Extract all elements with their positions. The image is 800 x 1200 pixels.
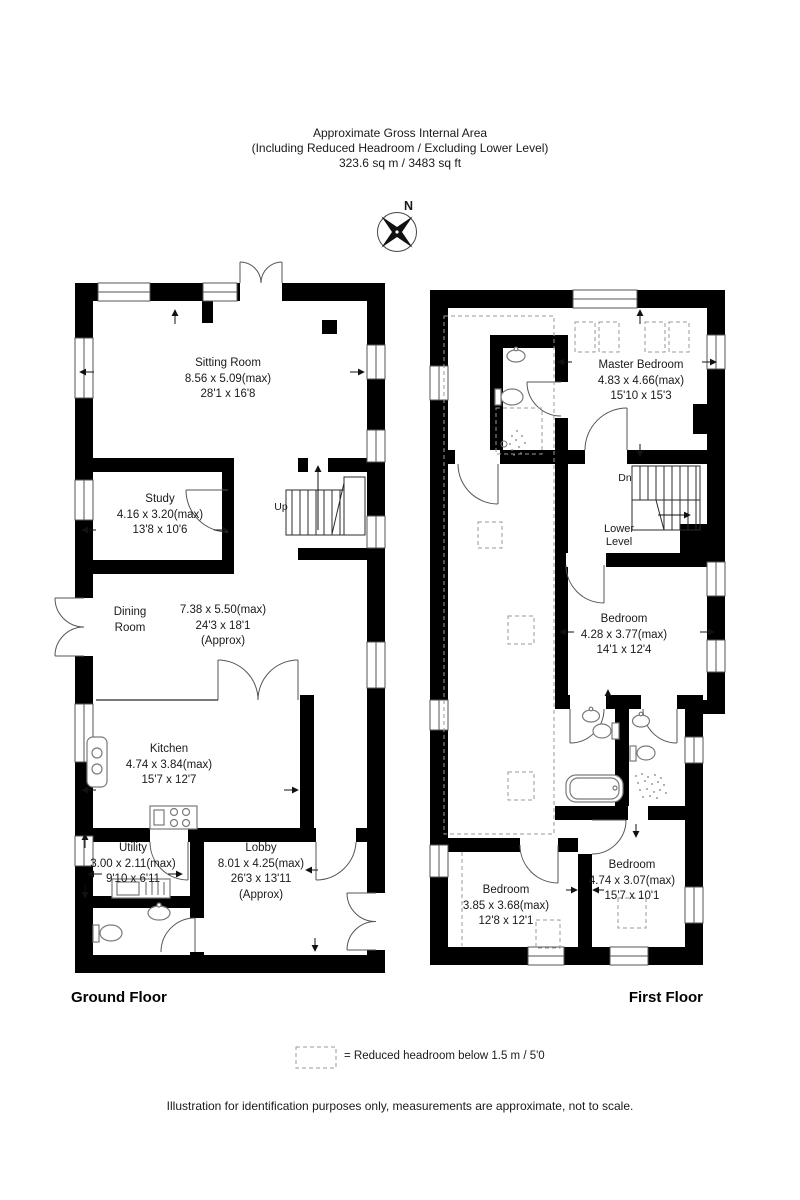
header-line3: 323.6 sq m / 3483 sq ft — [0, 156, 800, 171]
room-label-bedroom-middle: Bedroom 4.28 x 3.77(max) 14'1 x 12'4 — [581, 612, 667, 659]
room-name: Bedroom — [589, 858, 675, 874]
room-label-study: Study 4.16 x 3.20(max) 13'8 x 10'6 — [117, 492, 203, 539]
room-imperial: 9'10 x 6'11 — [90, 872, 175, 888]
room-imperial: 26'3 x 13'11 — [218, 872, 304, 888]
basin-icon — [583, 710, 600, 722]
room-name: Master Bedroom — [598, 358, 684, 374]
room-imperial: 15'10 x 15'3 — [598, 389, 684, 405]
basin-icon — [148, 906, 170, 920]
toilet-icon — [495, 389, 501, 405]
compass-north-label: N — [404, 199, 413, 213]
room-label-master-bedroom: Master Bedroom 4.83 x 4.66(max) 15'10 x … — [598, 358, 684, 405]
first-fixtures — [495, 347, 655, 802]
room-metric: 4.28 x 3.77(max) — [581, 628, 667, 644]
room-label-dining-room-dims: 7.38 x 5.50(max) 24'3 x 18'1 (Approx) — [180, 603, 266, 650]
room-name: Bedroom — [463, 883, 549, 899]
room-imperial: 15'7 x 12'7 — [126, 773, 212, 789]
room-imperial: 12'8 x 12'1 — [463, 914, 549, 930]
toilet-icon — [93, 925, 99, 942]
floor-plan-drawing — [0, 0, 800, 1200]
room-name: Utility — [90, 841, 175, 857]
room-imperial: 15'7 x 10'1 — [589, 889, 675, 905]
room-imperial: 13'8 x 10'6 — [117, 523, 203, 539]
stairs-down-label: Dn — [618, 472, 631, 484]
room-approx: (Approx) — [180, 634, 266, 650]
room-metric: 7.38 x 5.50(max) — [180, 603, 266, 619]
room-imperial: 14'1 x 12'4 — [581, 643, 667, 659]
first-floor-title: First Floor — [629, 989, 703, 1006]
kitchen-sink-icon — [87, 737, 107, 787]
room-metric: 4.74 x 3.84(max) — [126, 758, 212, 774]
room-metric: 3.00 x 2.11(max) — [90, 857, 175, 873]
room-metric: 3.85 x 3.68(max) — [463, 899, 549, 915]
room-metric: 4.16 x 3.20(max) — [117, 508, 203, 524]
room-name: Bedroom — [581, 612, 667, 628]
legend-label: = Reduced headroom below 1.5 m / 5'0 — [344, 1050, 545, 1062]
compass-icon — [378, 213, 417, 252]
room-label-bedroom-bottom-left: Bedroom 3.85 x 3.68(max) 12'8 x 12'1 — [463, 883, 549, 930]
toilet-icon — [630, 746, 636, 761]
room-name: Sitting Room — [185, 356, 271, 372]
ground-stairs — [286, 466, 365, 535]
room-name: Kitchen — [126, 742, 212, 758]
room-name: Room — [114, 621, 147, 637]
basin-icon — [633, 715, 650, 727]
room-label-sitting-room: Sitting Room 8.56 x 5.09(max) 28'1 x 16'… — [185, 356, 271, 403]
lower-level-label: Lower Level — [604, 523, 634, 549]
room-imperial: 28'1 x 16'8 — [185, 387, 271, 403]
floorplan-page: Approximate Gross Internal Area (Includi… — [0, 0, 800, 1200]
header-line1: Approximate Gross Internal Area — [0, 126, 800, 141]
room-name: Dining — [114, 605, 147, 621]
footer-disclaimer: Illustration for identification purposes… — [0, 1099, 800, 1113]
room-label-utility: Utility 3.00 x 2.11(max) 9'10 x 6'11 — [90, 841, 175, 888]
room-metric: 8.56 x 5.09(max) — [185, 372, 271, 388]
basin-icon — [507, 350, 525, 362]
room-label-bedroom-bottom-right: Bedroom 4.74 x 3.07(max) 15'7 x 10'1 — [589, 858, 675, 905]
room-label-kitchen: Kitchen 4.74 x 3.84(max) 15'7 x 12'7 — [126, 742, 212, 789]
room-imperial: 24'3 x 18'1 — [180, 619, 266, 635]
room-label-lobby: Lobby 8.01 x 4.25(max) 26'3 x 13'11 (App… — [218, 841, 304, 903]
toilet-icon — [612, 723, 619, 739]
room-metric: 4.74 x 3.07(max) — [589, 874, 675, 890]
room-metric: 8.01 x 4.25(max) — [218, 857, 304, 873]
room-metric: 4.83 x 4.66(max) — [598, 374, 684, 390]
page-header: Approximate Gross Internal Area (Includi… — [0, 126, 800, 171]
stairs-up-label: Up — [274, 501, 287, 513]
first-stairs — [632, 466, 700, 530]
room-name: Study — [117, 492, 203, 508]
ground-floor-title: Ground Floor — [71, 989, 167, 1006]
room-name: Lobby — [218, 841, 304, 857]
legend-box-icon — [296, 1047, 336, 1068]
header-line2: (Including Reduced Headroom / Excluding … — [0, 141, 800, 156]
room-approx: (Approx) — [218, 888, 304, 904]
room-label-dining-room-name: Dining Room — [114, 605, 147, 636]
